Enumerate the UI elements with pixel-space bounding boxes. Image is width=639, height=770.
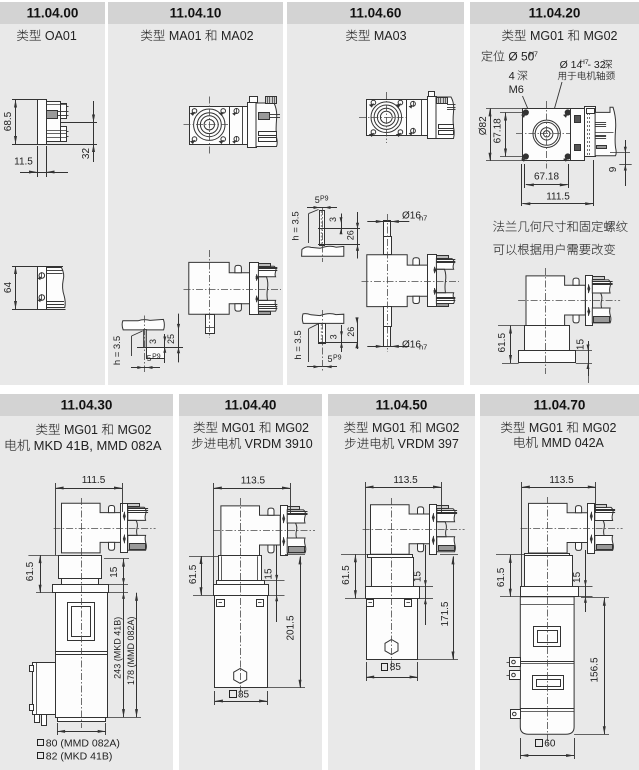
svg-text:MG02: MG02 <box>580 29 618 43</box>
svg-text:MMD 042A: MMD 042A <box>538 436 605 450</box>
svg-text:113.5: 113.5 <box>241 476 266 487</box>
svg-text:MA02: MA02 <box>218 29 254 43</box>
svg-text:64: 64 <box>3 282 14 294</box>
svg-text:15: 15 <box>572 571 583 583</box>
svg-text:MG01: MG01 <box>61 423 102 437</box>
svg-text:201.5: 201.5 <box>286 615 297 640</box>
svg-text:85: 85 <box>390 662 402 673</box>
svg-text:h7: h7 <box>419 214 427 223</box>
svg-text:11.04.20: 11.04.20 <box>529 5 581 20</box>
svg-text:178 (MMD 082A): 178 (MMD 082A) <box>126 616 136 685</box>
svg-text:MG01: MG01 <box>218 421 259 435</box>
svg-text:111.5: 111.5 <box>546 192 570 203</box>
svg-text:5: 5 <box>147 353 152 363</box>
svg-text:15: 15 <box>263 568 274 580</box>
svg-text:80 (MMD 082A): 80 (MMD 082A) <box>46 738 120 750</box>
svg-text:P9: P9 <box>320 196 329 203</box>
svg-text:26: 26 <box>346 230 356 240</box>
svg-text:3: 3 <box>329 334 339 339</box>
svg-text:MG02: MG02 <box>272 421 310 435</box>
svg-text:3: 3 <box>148 339 158 344</box>
svg-text:61.5: 61.5 <box>25 561 36 581</box>
svg-text:243 (MKD 41B): 243 (MKD 41B) <box>113 617 123 679</box>
svg-text:H7: H7 <box>529 52 538 59</box>
svg-text:113.5: 113.5 <box>549 475 574 486</box>
svg-text:VRDM 397: VRDM 397 <box>394 437 459 451</box>
svg-text:h = 3.5: h = 3.5 <box>291 211 302 240</box>
svg-text:11.5: 11.5 <box>14 157 33 168</box>
svg-text:MA03: MA03 <box>370 29 406 43</box>
svg-text:68.5: 68.5 <box>3 111 14 131</box>
svg-text:MA01: MA01 <box>165 29 205 43</box>
svg-text:MG02: MG02 <box>422 421 460 435</box>
svg-text:M6: M6 <box>509 84 524 96</box>
svg-text:5: 5 <box>328 354 333 364</box>
svg-text:4: 4 <box>509 71 518 83</box>
svg-text:171.5: 171.5 <box>440 601 451 626</box>
svg-text:11.04.00: 11.04.00 <box>27 5 79 20</box>
svg-text:32: 32 <box>81 148 92 160</box>
svg-text:VRDM 3910: VRDM 3910 <box>241 437 313 451</box>
svg-text:3: 3 <box>328 217 338 222</box>
svg-text:11.04.60: 11.04.60 <box>350 5 402 20</box>
svg-text:26: 26 <box>346 327 356 337</box>
svg-text:5: 5 <box>315 195 320 205</box>
svg-text:61.5: 61.5 <box>188 564 199 584</box>
svg-text:MG01: MG01 <box>525 421 566 435</box>
svg-text:15: 15 <box>412 571 423 583</box>
svg-text:MG02: MG02 <box>579 421 617 435</box>
svg-text:11.04.40: 11.04.40 <box>225 397 277 412</box>
svg-text:25: 25 <box>166 334 176 344</box>
svg-text:9: 9 <box>608 166 619 172</box>
svg-text:MKD 41B, MMD 082A: MKD 41B, MMD 082A <box>30 438 162 453</box>
svg-text:h = 3.5: h = 3.5 <box>112 336 123 365</box>
svg-text:82 (MKD 41B): 82 (MKD 41B) <box>46 751 113 763</box>
svg-text:11.04.50: 11.04.50 <box>376 397 428 412</box>
svg-text:h = 3.5: h = 3.5 <box>293 330 304 359</box>
svg-text:60: 60 <box>544 738 556 749</box>
svg-text:11.04.10: 11.04.10 <box>170 5 222 20</box>
svg-text:11.04.30: 11.04.30 <box>61 397 113 412</box>
svg-text:111.5: 111.5 <box>82 475 106 486</box>
svg-text:MG01: MG01 <box>527 29 568 43</box>
svg-text:67.18: 67.18 <box>492 118 503 143</box>
svg-text:85: 85 <box>238 689 250 700</box>
svg-text:113.5: 113.5 <box>393 475 418 486</box>
svg-text:11.04.70: 11.04.70 <box>534 397 586 412</box>
svg-text:156.5: 156.5 <box>590 657 601 682</box>
svg-text:61.5: 61.5 <box>341 565 352 585</box>
svg-text:P9: P9 <box>152 354 161 361</box>
svg-text:Ø82: Ø82 <box>478 116 489 135</box>
svg-text:MG02: MG02 <box>114 423 152 437</box>
svg-text:MG01: MG01 <box>369 421 410 435</box>
svg-text:15: 15 <box>575 339 586 351</box>
svg-text:61.5: 61.5 <box>497 333 508 353</box>
svg-text:P9: P9 <box>333 355 342 362</box>
svg-text:15: 15 <box>109 566 120 578</box>
svg-text:h7: h7 <box>419 343 427 352</box>
svg-text:OA01: OA01 <box>41 29 76 43</box>
svg-text:67.18: 67.18 <box>534 172 559 183</box>
svg-text:61.5: 61.5 <box>496 567 507 587</box>
